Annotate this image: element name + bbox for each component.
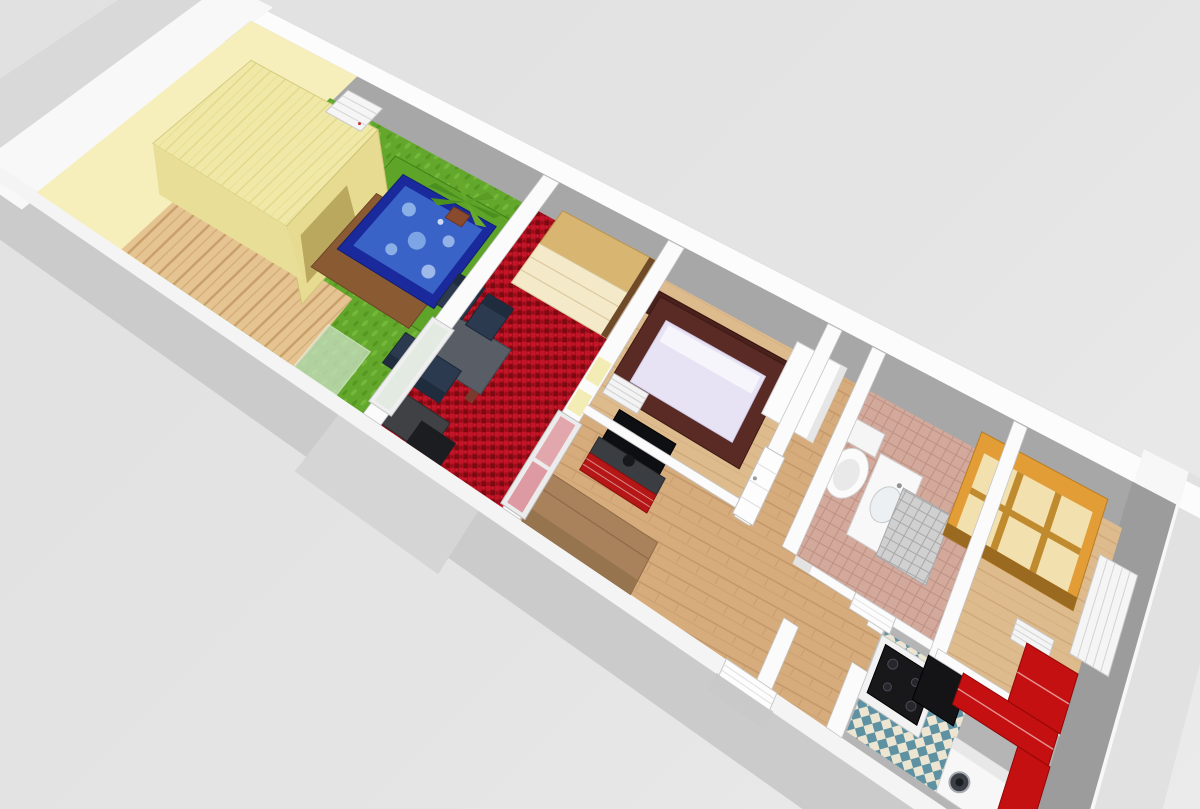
- tv-stand-foot: [623, 455, 635, 467]
- hot-tub-ripple: [438, 219, 444, 225]
- stove-burner: [883, 683, 891, 691]
- bedroom-door-handle: [753, 476, 757, 480]
- ac-unit-logo-dot: [358, 122, 361, 125]
- washer-door-hub: [955, 778, 963, 786]
- hot-tub-ripple: [443, 235, 455, 247]
- render-root: [0, 0, 1200, 809]
- hot-tub-ripple: [421, 265, 435, 279]
- stove-burner: [888, 659, 898, 669]
- hot-tub-ripple: [402, 203, 416, 217]
- hot-tub-ripple: [408, 232, 426, 250]
- floorplan-3d-render: [0, 0, 1200, 809]
- stove-burner: [906, 701, 916, 711]
- hot-tub-ripple: [385, 243, 397, 255]
- floorplan-canvas: [0, 0, 1200, 809]
- sink-tap: [897, 483, 902, 488]
